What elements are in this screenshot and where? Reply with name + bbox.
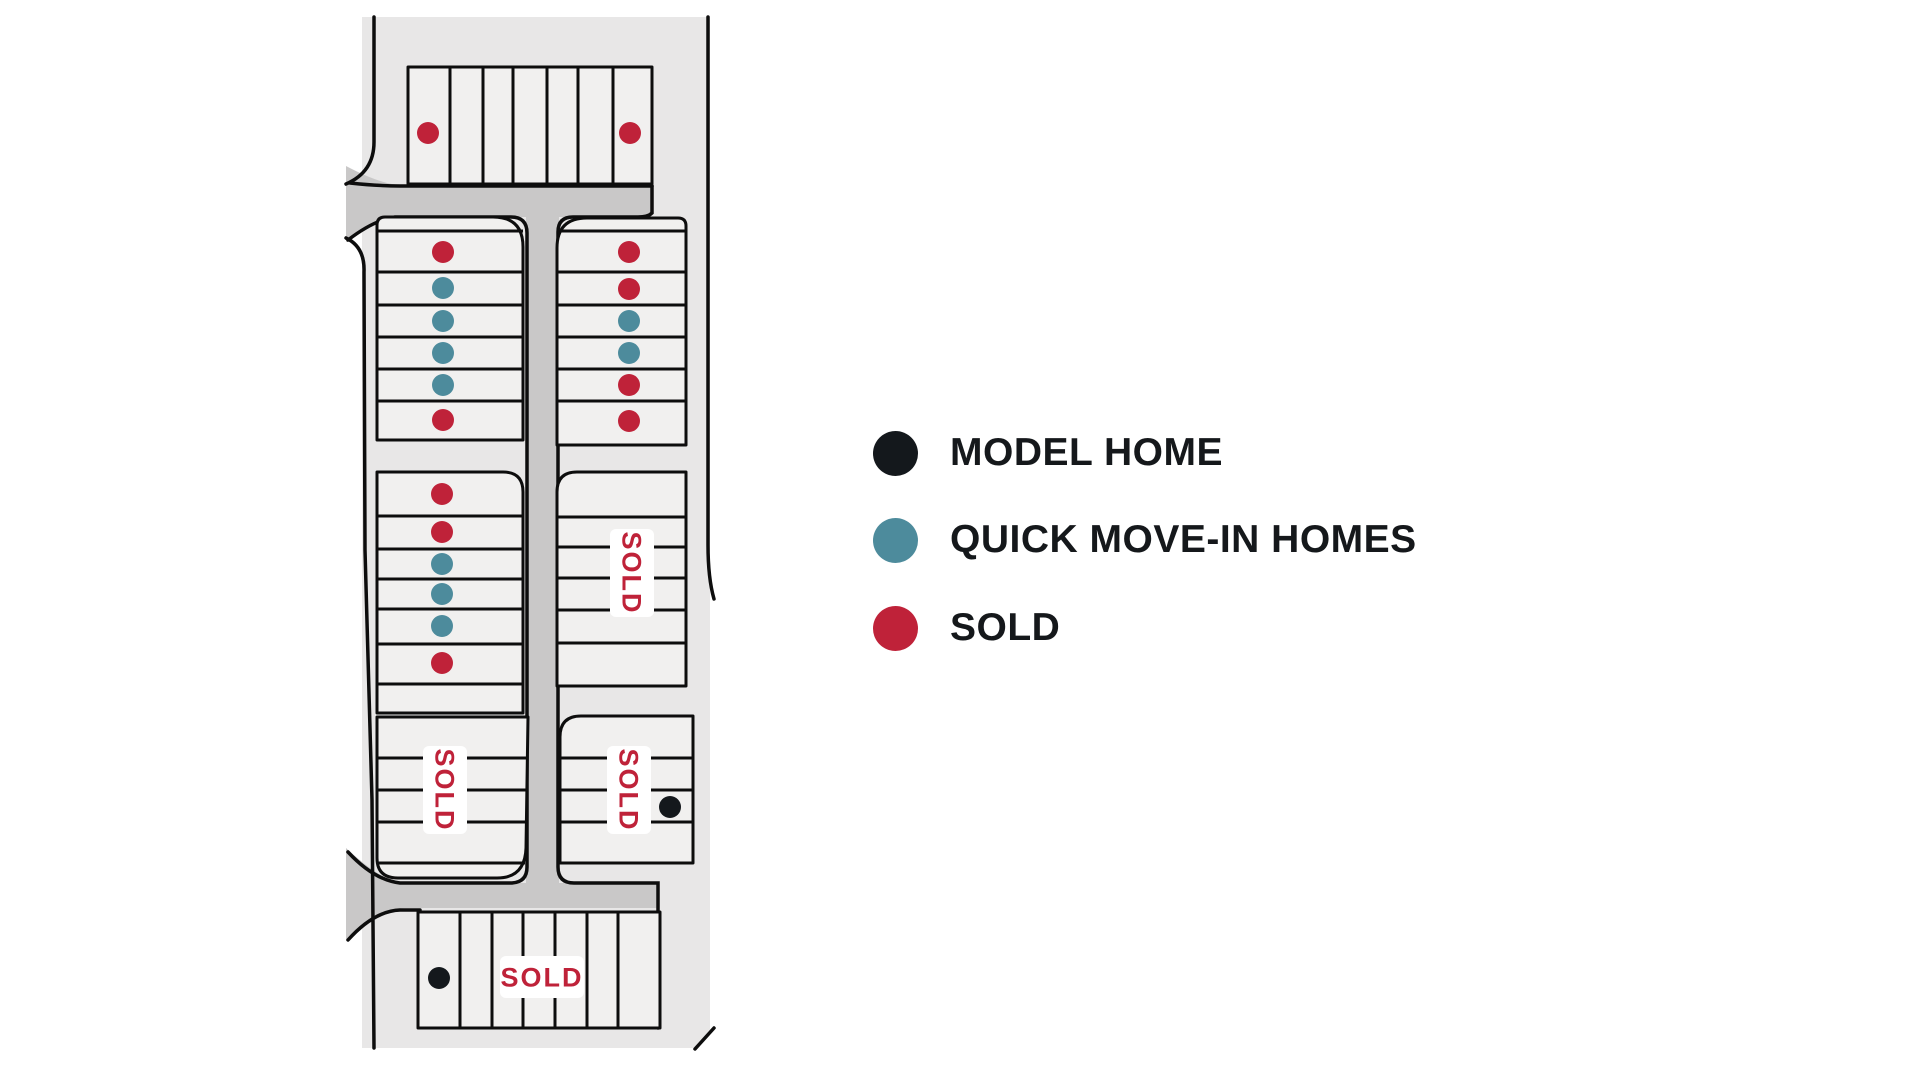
block-top (408, 67, 652, 184)
lot-status-dot-sold (431, 483, 453, 505)
lot-status-dot-model-home (659, 796, 681, 818)
model-home-dot-icon (873, 431, 918, 476)
lot-status-dot-quick-move-in (618, 310, 640, 332)
lot-status-dot-model-home (428, 967, 450, 989)
svg-text:SOLD: SOLD (430, 748, 460, 831)
lot-status-dot-quick-move-in (432, 374, 454, 396)
lot-status-dot-quick-move-in (432, 342, 454, 364)
sold-lot-label: SOLD (500, 956, 584, 998)
lot-status-dot-sold (432, 241, 454, 263)
page: SOLDSOLDSOLDSOLD MODEL HOME QUICK MOVE-I… (0, 0, 1920, 1080)
lot-status-dot-quick-move-in (432, 310, 454, 332)
lot-status-dot-sold (618, 374, 640, 396)
lot-status-dot-sold (619, 122, 641, 144)
sold-lot-label: SOLD (423, 746, 467, 834)
lot-status-dot-sold (618, 278, 640, 300)
legend-label: QUICK MOVE-IN HOMES (950, 518, 1417, 562)
legend-label: MODEL HOME (950, 431, 1223, 475)
svg-text:SOLD: SOLD (614, 748, 644, 831)
quick-move-in-dot-icon (873, 518, 918, 563)
lot-status-dot-quick-move-in (618, 342, 640, 364)
lot-status-dot-sold (431, 521, 453, 543)
lot-status-dot-sold (618, 241, 640, 263)
legend-item-model-home: MODEL HOME (873, 430, 1223, 476)
lot-status-dot-sold (417, 122, 439, 144)
lot-status-dot-quick-move-in (431, 553, 453, 575)
legend-label: SOLD (950, 606, 1060, 650)
center-road (526, 215, 559, 885)
legend-item-sold: SOLD (873, 605, 1060, 651)
sold-lot-label: SOLD (610, 529, 654, 617)
svg-text:SOLD: SOLD (617, 531, 647, 614)
lot-status-dot-quick-move-in (431, 583, 453, 605)
lot-status-dot-sold (432, 409, 454, 431)
sold-lot-label: SOLD (607, 746, 651, 834)
lot-status-dot-sold (618, 410, 640, 432)
lot-status-dot-quick-move-in (432, 277, 454, 299)
svg-text:SOLD: SOLD (500, 963, 583, 993)
lot-status-dot-sold (431, 652, 453, 674)
legend-item-quick-move-in: QUICK MOVE-IN HOMES (873, 517, 1417, 563)
lot-status-dot-quick-move-in (431, 615, 453, 637)
sold-dot-icon (873, 606, 918, 651)
